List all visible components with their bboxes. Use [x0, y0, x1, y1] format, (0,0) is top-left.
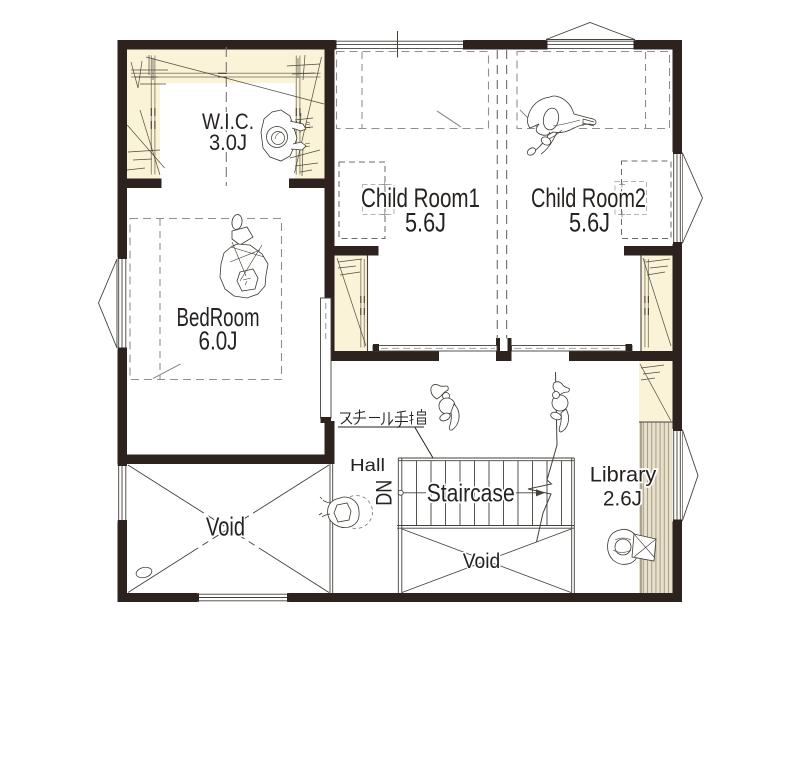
- svg-text:5.6J: 5.6J: [569, 208, 610, 238]
- svg-text:Void: Void: [206, 514, 245, 542]
- svg-text:Library: Library: [590, 462, 657, 486]
- svg-text:Staircase: Staircase: [427, 480, 515, 508]
- svg-text:5.6J: 5.6J: [405, 208, 446, 238]
- svg-text:Hall: Hall: [350, 455, 385, 475]
- svg-text:DN: DN: [372, 480, 397, 506]
- svg-text:2.6J: 2.6J: [603, 487, 642, 511]
- svg-text:Void: Void: [463, 550, 501, 573]
- svg-text:6.0J: 6.0J: [199, 326, 238, 356]
- svg-text:3.0J: 3.0J: [209, 130, 247, 155]
